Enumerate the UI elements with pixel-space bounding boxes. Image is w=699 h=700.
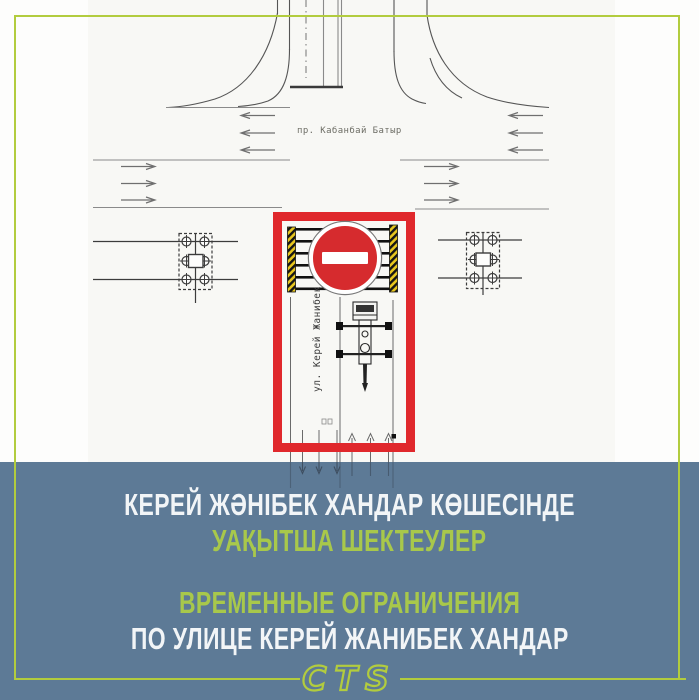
frame-bottom-left-segment [14, 678, 300, 680]
title-kz-street: КЕРЕЙ ЖӘНІБЕК ХАНДАР КӨШЕСІНДЕ [0, 487, 699, 523]
no-entry-sign-icon [309, 222, 381, 294]
title-kz-restrictions: УАҚЫТША ШЕКТЕУЛЕР [0, 523, 699, 559]
banner-text-block: КЕРЕЙ ЖӘНІБЕК ХАНДАР КӨШЕСІНДЕ УАҚЫТША Ш… [0, 462, 699, 657]
title-ru-street: ПО УЛИЦЕ КЕРЕЙ ЖАНИБЕК ХАНДАР [0, 621, 699, 657]
poster: пр. Кабанбай Батыр ул. Керей Жанибек хан… [0, 0, 699, 700]
cts-logo: CTS [302, 662, 397, 695]
avenue-roadway [93, 108, 549, 210]
title-gap [0, 559, 699, 585]
barrier-gate-right [438, 232, 522, 295]
title-ru-restrictions: ВРЕМЕННЫЕ ОГРАНИЧЕНИЯ [0, 585, 699, 621]
north-leg-roadway [168, 0, 549, 108]
no-entry-bar [322, 252, 368, 264]
avenue-name-label: пр. Кабанбай Батыр [297, 126, 402, 136]
eastbound-lane-arrows [121, 164, 458, 204]
barrier-gate-left [93, 233, 238, 303]
frame-bottom-right-segment [400, 678, 686, 680]
